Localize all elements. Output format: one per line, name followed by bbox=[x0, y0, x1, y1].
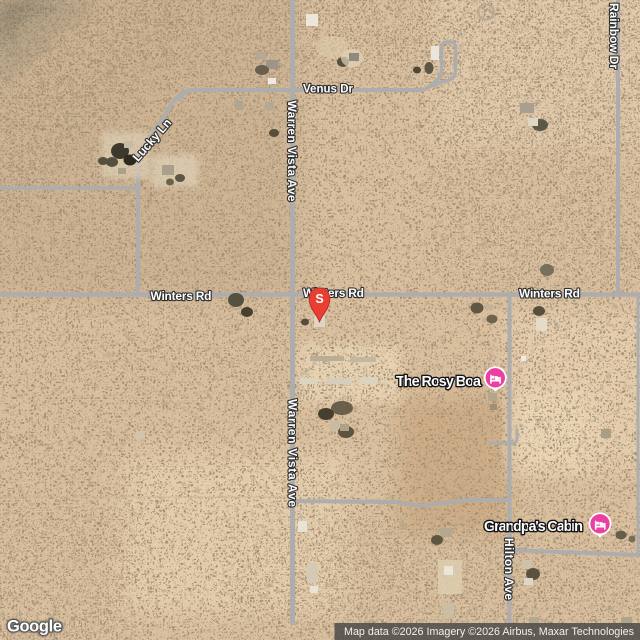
svg-text:Warren Vista Ave: Warren Vista Ave bbox=[285, 101, 299, 202]
svg-text:The Rosy Boa: The Rosy Boa bbox=[396, 374, 482, 390]
svg-text:Winters Rd: Winters Rd bbox=[151, 289, 212, 303]
svg-text:Map data ©2026 Imagery ©2026 A: Map data ©2026 Imagery ©2026 Airbus, Max… bbox=[344, 626, 634, 638]
svg-text:Winters Rd: Winters Rd bbox=[519, 287, 580, 301]
svg-text:Google: Google bbox=[7, 618, 62, 636]
svg-text:S: S bbox=[315, 292, 323, 306]
svg-text:Warren Vista Ave: Warren Vista Ave bbox=[286, 399, 300, 507]
svg-text:Venus Dr: Venus Dr bbox=[303, 84, 354, 96]
svg-text:Hilton Ave: Hilton Ave bbox=[502, 538, 516, 600]
svg-text:Grandpa's Cabin: Grandpa's Cabin bbox=[484, 519, 583, 535]
svg-text:Rainbow Dr: Rainbow Dr bbox=[607, 3, 621, 69]
